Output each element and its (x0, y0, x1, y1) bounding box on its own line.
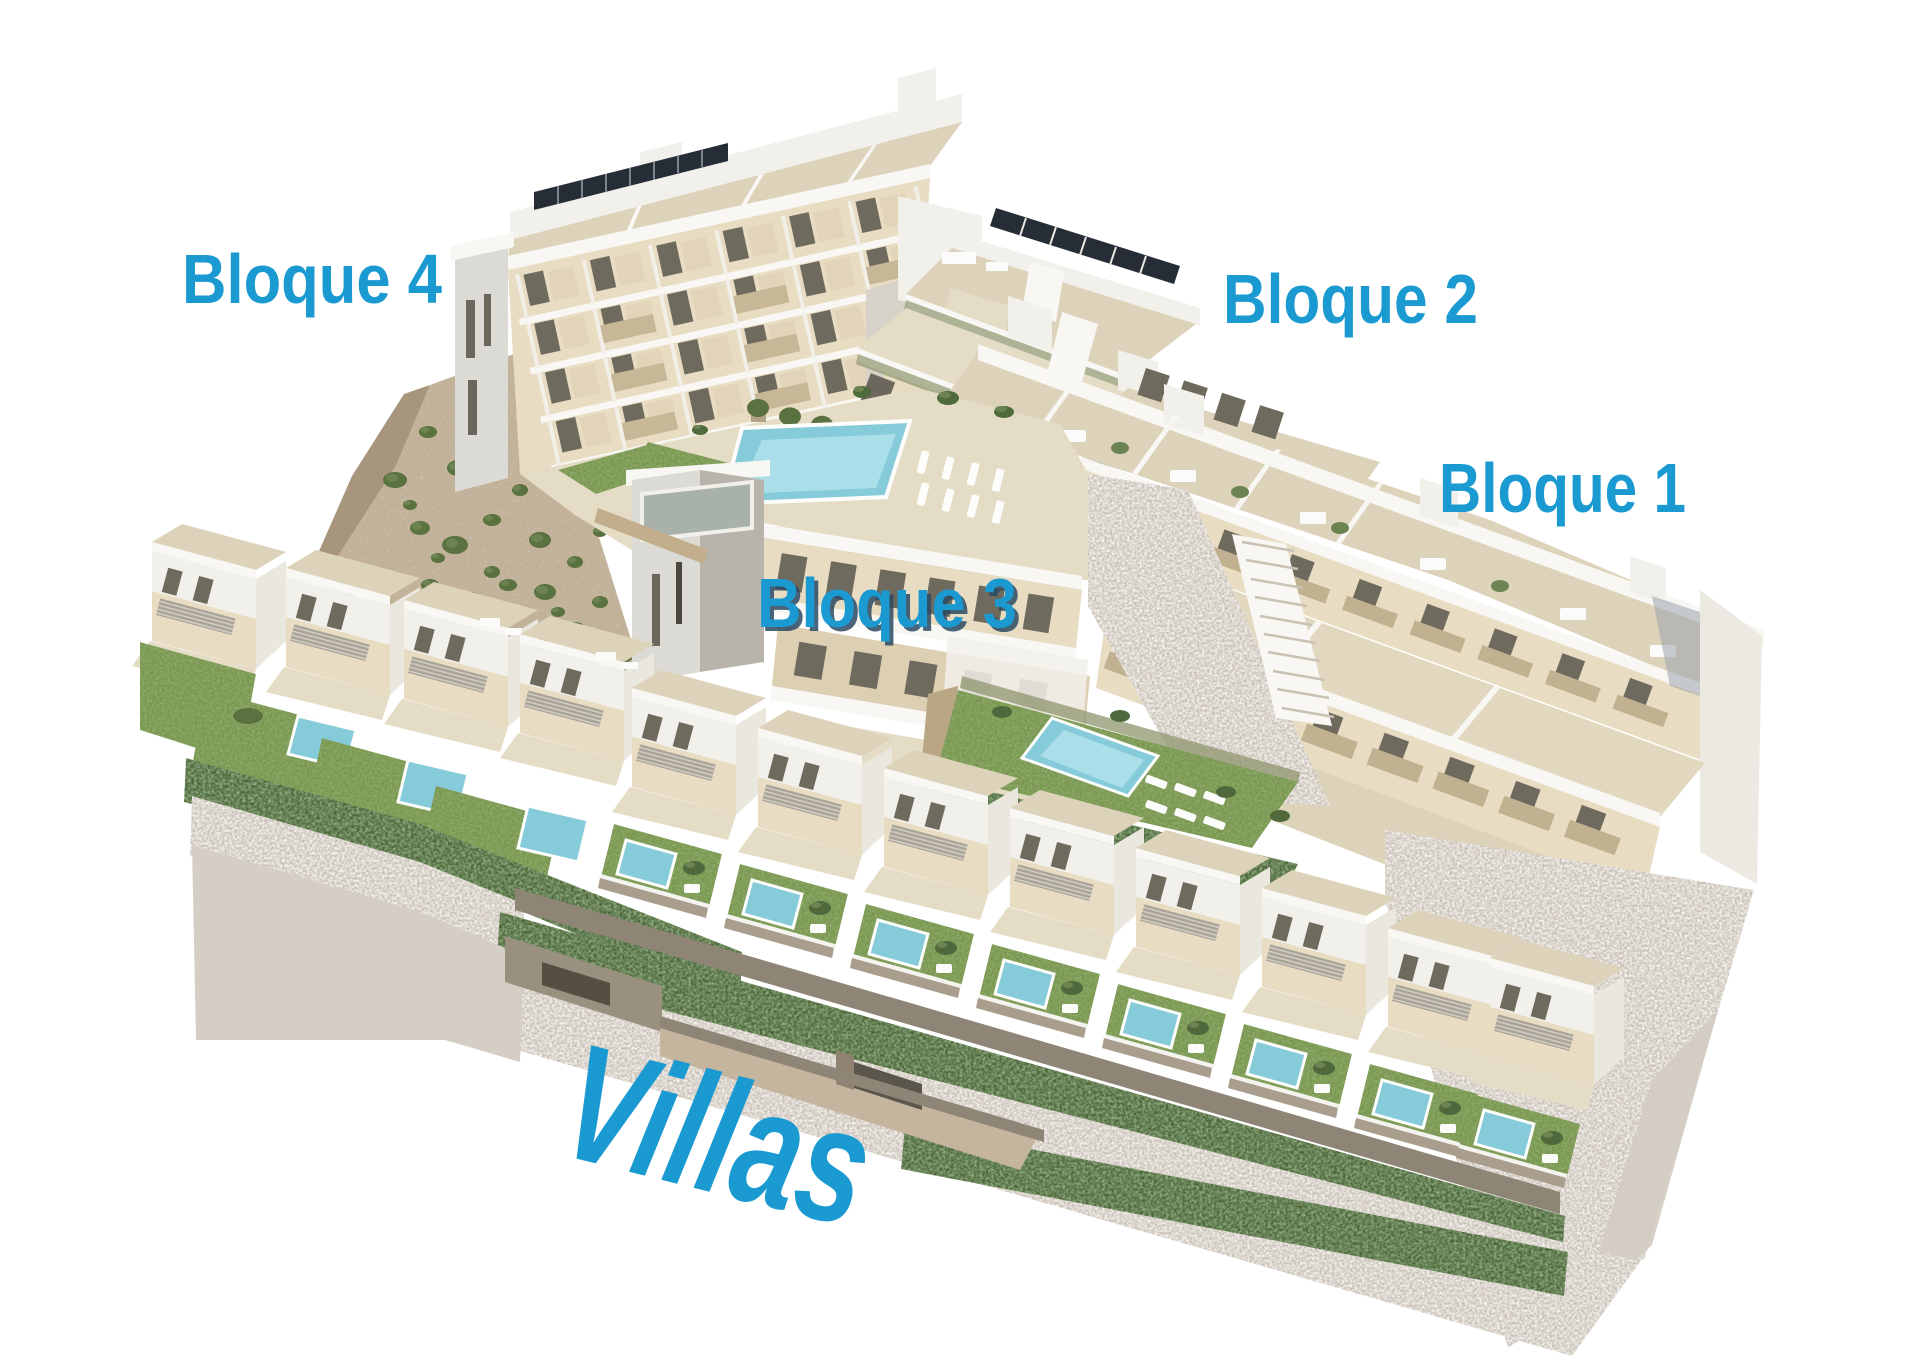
svg-text:Bloque 2: Bloque 2 (1223, 260, 1478, 338)
svg-text:Bloque 1: Bloque 1 (1439, 449, 1686, 527)
svg-text:Bloque 4: Bloque 4 (182, 240, 442, 318)
svg-text:Bloque 3: Bloque 3 (757, 564, 1017, 642)
